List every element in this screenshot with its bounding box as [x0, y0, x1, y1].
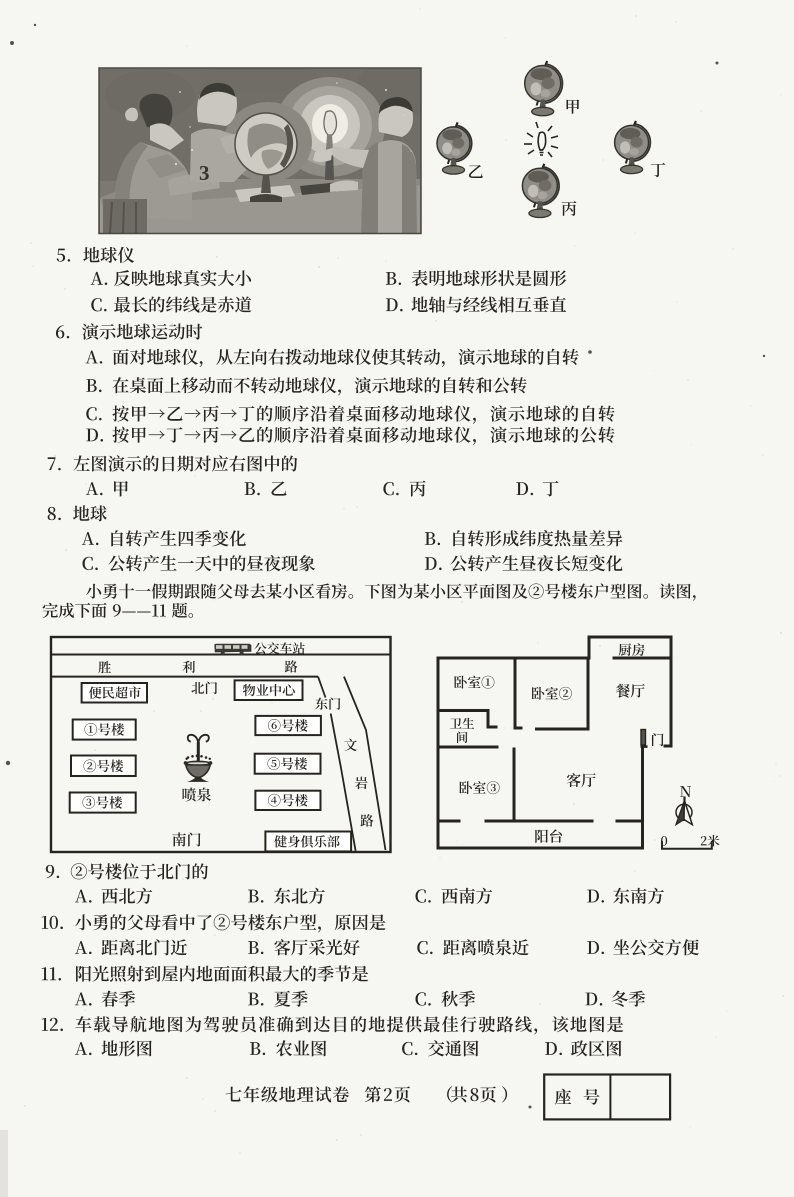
svg-text:3: 3 — [199, 161, 210, 185]
